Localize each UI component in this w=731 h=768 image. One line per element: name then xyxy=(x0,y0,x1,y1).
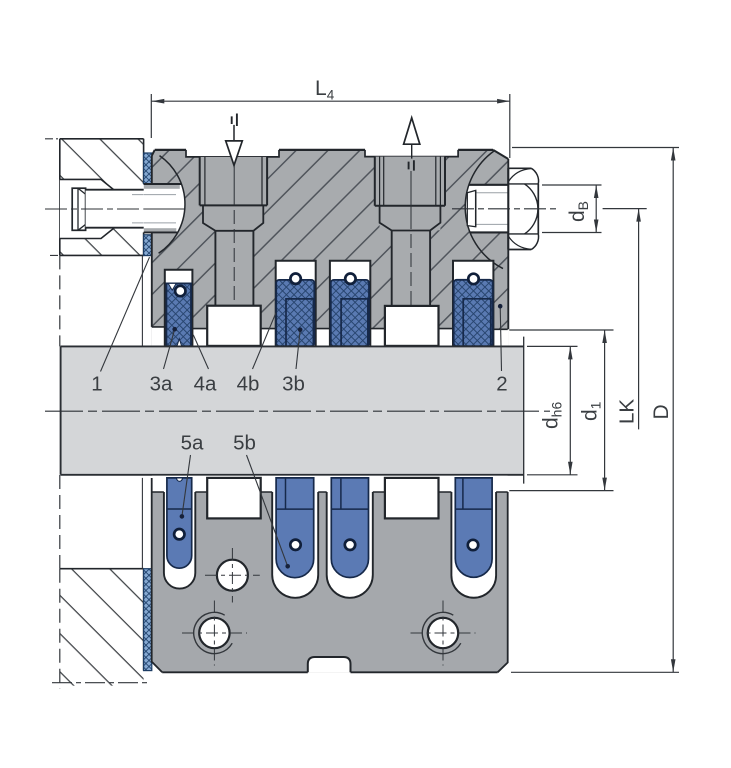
svg-text:LK: LK xyxy=(616,399,639,424)
svg-text:4b: 4b xyxy=(237,373,260,396)
svg-text:D: D xyxy=(650,404,673,419)
svg-text:5b: 5b xyxy=(233,432,256,455)
svg-text:4a: 4a xyxy=(194,373,217,396)
svg-text:3b: 3b xyxy=(282,373,305,396)
svg-text:2: 2 xyxy=(496,373,507,396)
svg-text:5a: 5a xyxy=(181,432,204,455)
svg-text:3a: 3a xyxy=(150,373,173,396)
svg-text:1: 1 xyxy=(91,373,102,396)
